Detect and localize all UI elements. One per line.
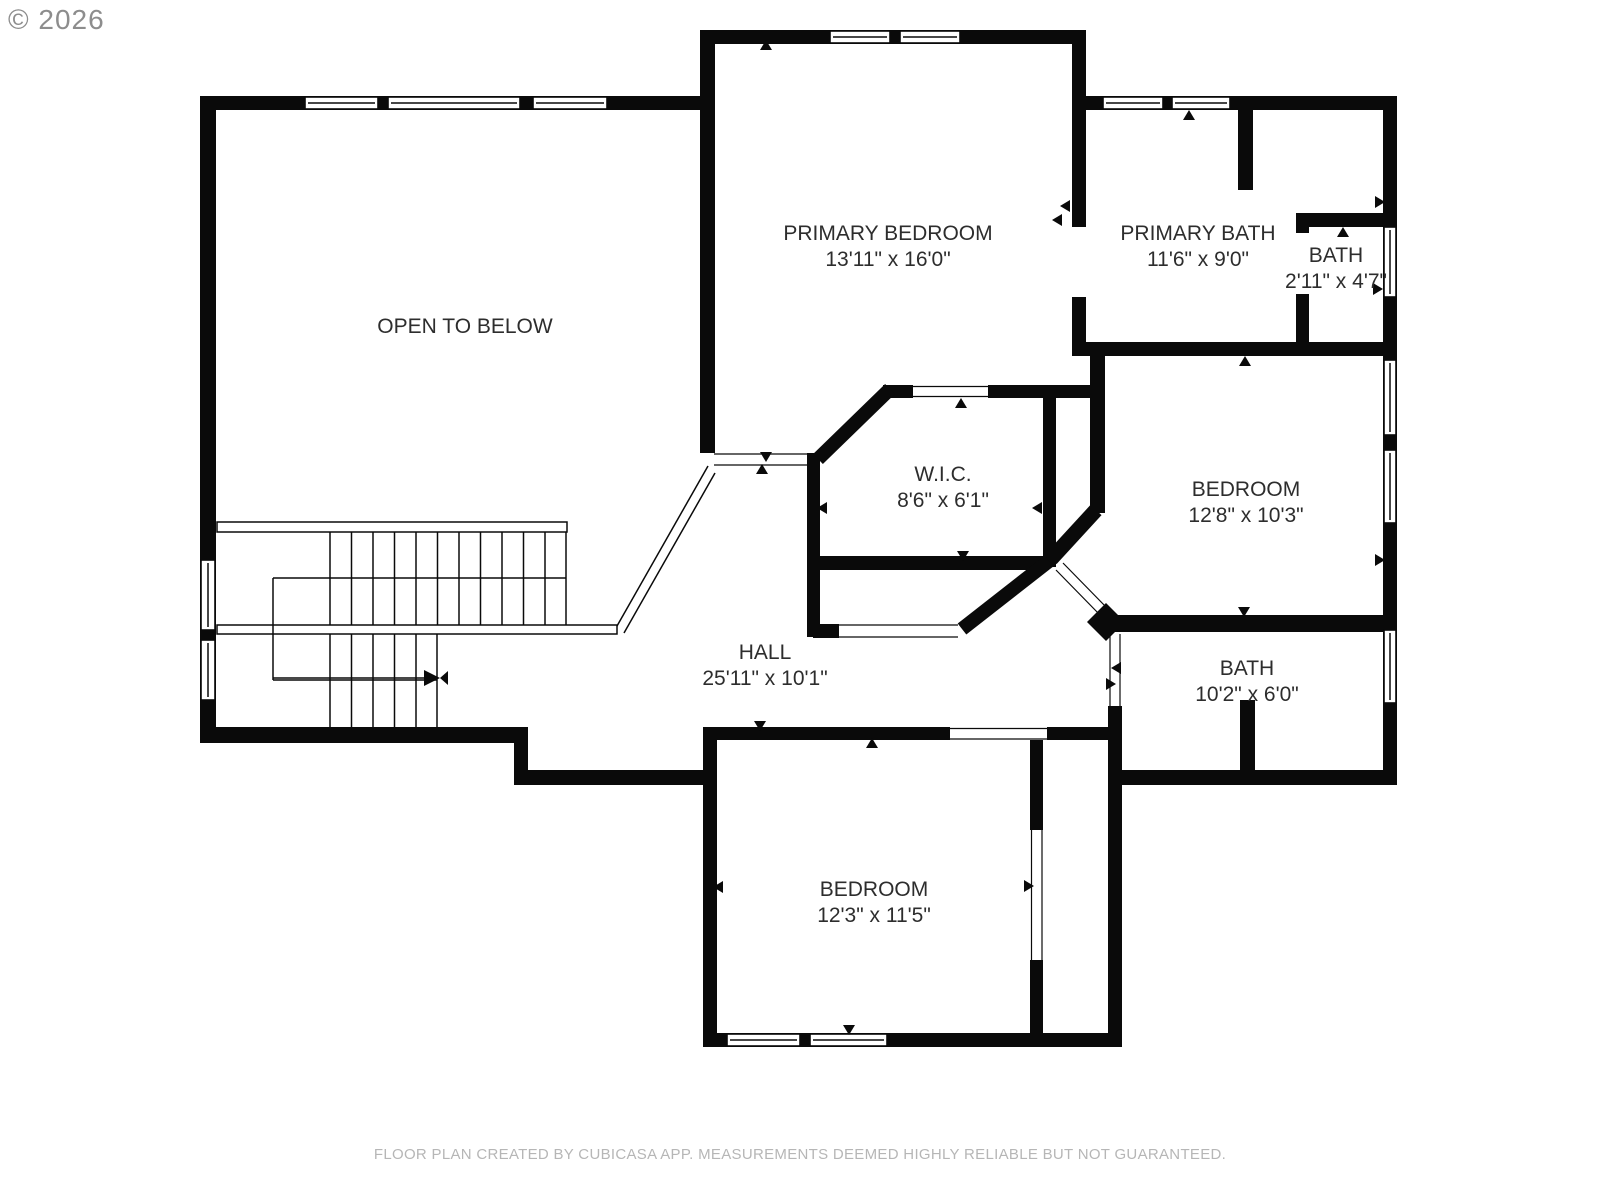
marker-arrow-icon: [1239, 356, 1251, 366]
room-dims: 8'6" x 6'1": [897, 488, 989, 514]
room-label-open-to-below: OPEN TO BELOW: [377, 314, 552, 340]
marker-arrow-icon: [1111, 662, 1121, 674]
door-swing-line: [1063, 563, 1107, 608]
room-label-bath-small: BATH 2'11" x 4'7": [1285, 243, 1387, 295]
stair-railing: [217, 522, 567, 532]
marker-arrow-icon: [1060, 200, 1070, 212]
door-swing-line: [1056, 570, 1100, 615]
windows-layer: [201, 31, 1396, 1046]
stairwell-boundary: [624, 473, 715, 633]
floor-plan: OPEN TO BELOW PRIMARY BEDROOM 13'11" x 1…: [0, 0, 1600, 1200]
room-name: BEDROOM: [1188, 477, 1303, 503]
floor-plan-drawing: [0, 0, 1600, 1200]
room-name: BATH: [1195, 656, 1299, 682]
marker-arrow-icon: [1337, 227, 1349, 237]
room-label-wic: W.I.C. 8'6" x 6'1": [897, 462, 989, 514]
room-label-bath-right: BATH 10'2" x 6'0": [1195, 656, 1299, 708]
room-name: W.I.C.: [897, 462, 989, 488]
room-label-bedroom-bottom: BEDROOM 12'3" x 11'5": [817, 877, 931, 929]
footer-disclaimer: FLOOR PLAN CREATED BY CUBICASA APP. MEAS…: [374, 1146, 1226, 1163]
walls-layer: [200, 30, 1397, 1047]
stairs: [217, 466, 715, 727]
marker-arrow-icon: [760, 452, 772, 462]
room-label-primary-bedroom: PRIMARY BEDROOM 13'11" x 16'0": [783, 221, 992, 273]
room-name: HALL: [702, 640, 827, 666]
door-hinge-block: [1087, 603, 1125, 641]
stair-direction-tick-icon: [440, 671, 448, 685]
marker-arrow-icon: [955, 398, 967, 408]
room-name: PRIMARY BEDROOM: [783, 221, 992, 247]
marker-arrow-icon: [1052, 214, 1062, 226]
room-label-bedroom-right: BEDROOM 12'8" x 10'3": [1188, 477, 1303, 529]
room-label-primary-bath: PRIMARY BATH 11'6" x 9'0": [1120, 221, 1275, 273]
room-dims: 12'8" x 10'3": [1188, 503, 1303, 529]
room-name: BEDROOM: [817, 877, 931, 903]
room-name: PRIMARY BATH: [1120, 221, 1275, 247]
copyright-text: © 2026: [8, 4, 105, 36]
room-name: OPEN TO BELOW: [377, 314, 552, 340]
room-dims: 25'11" x 10'1": [702, 666, 827, 692]
room-dims: 2'11" x 4'7": [1285, 269, 1387, 295]
marker-arrow-icon: [1032, 502, 1042, 514]
room-dims: 11'6" x 9'0": [1120, 247, 1275, 273]
room-dims: 10'2" x 6'0": [1195, 682, 1299, 708]
stair-railing: [217, 625, 617, 634]
room-label-hall: HALL 25'11" x 10'1": [702, 640, 827, 692]
room-dims: 12'3" x 11'5": [817, 903, 931, 929]
marker-arrow-icon: [1183, 110, 1195, 120]
stairwell-boundary: [617, 466, 708, 626]
marker-arrow-icon: [1024, 880, 1034, 892]
marker-arrow-icon: [1106, 678, 1116, 690]
room-name: BATH: [1285, 243, 1387, 269]
room-dims: 13'11" x 16'0": [783, 247, 992, 273]
